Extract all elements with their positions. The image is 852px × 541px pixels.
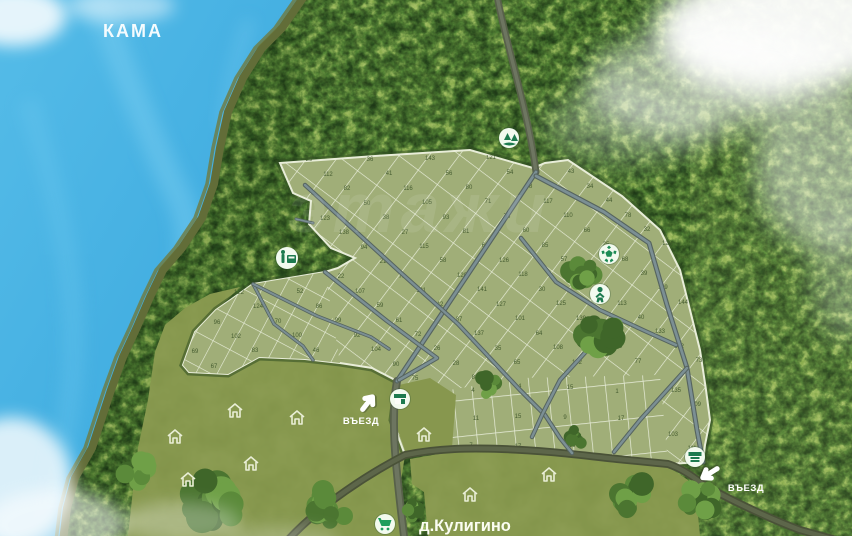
svg-text:73: 73: [696, 358, 703, 364]
svg-text:143: 143: [425, 156, 436, 162]
svg-text:128: 128: [662, 241, 673, 247]
svg-text:39: 39: [641, 271, 648, 277]
svg-text:125: 125: [556, 301, 567, 307]
svg-text:101: 101: [515, 316, 526, 322]
svg-text:122: 122: [234, 290, 245, 296]
svg-text:22: 22: [338, 274, 345, 280]
svg-text:66: 66: [584, 228, 591, 234]
svg-text:этажи: этажи: [288, 169, 552, 247]
svg-text:34: 34: [587, 184, 594, 190]
svg-text:32: 32: [644, 227, 651, 233]
svg-text:15: 15: [567, 385, 574, 391]
svg-text:29: 29: [306, 157, 313, 163]
svg-text:28: 28: [453, 361, 460, 367]
svg-text:36: 36: [367, 157, 374, 163]
svg-text:103: 103: [668, 432, 679, 438]
svg-text:126: 126: [499, 258, 510, 264]
svg-text:67: 67: [211, 364, 218, 370]
svg-text:52: 52: [297, 289, 304, 295]
svg-text:КАМА: КАМА: [103, 21, 163, 41]
svg-text:78: 78: [625, 213, 632, 219]
svg-text:35: 35: [495, 346, 502, 352]
svg-text:104: 104: [371, 347, 382, 353]
svg-text:86: 86: [316, 304, 323, 310]
svg-text:64: 64: [536, 331, 543, 337]
svg-text:ВЪЕЗД: ВЪЕЗД: [728, 483, 764, 494]
svg-text:102: 102: [231, 334, 242, 340]
svg-text:75: 75: [412, 376, 419, 382]
svg-text:110: 110: [563, 213, 573, 219]
svg-text:121: 121: [486, 155, 497, 161]
svg-text:61: 61: [396, 318, 403, 324]
svg-text:108: 108: [553, 345, 564, 351]
svg-text:ВЪЕЗД: ВЪЕЗД: [343, 416, 379, 427]
svg-text:д.Кулигино: д.Кулигино: [419, 517, 511, 535]
svg-text:65: 65: [514, 360, 521, 366]
svg-text:90: 90: [393, 362, 400, 368]
svg-text:58: 58: [440, 258, 447, 264]
svg-text:72: 72: [415, 332, 422, 338]
svg-text:26: 26: [434, 346, 441, 352]
svg-text:69: 69: [192, 349, 199, 355]
svg-text:107: 107: [355, 289, 366, 295]
svg-text:11: 11: [473, 416, 480, 422]
svg-text:137: 137: [474, 331, 485, 337]
svg-text:113: 113: [617, 301, 627, 307]
svg-text:127: 127: [496, 302, 507, 308]
svg-text:43: 43: [568, 169, 575, 175]
svg-text:15: 15: [515, 414, 522, 420]
svg-text:44: 44: [606, 198, 613, 204]
svg-text:17: 17: [618, 416, 625, 422]
svg-text:68: 68: [622, 257, 629, 263]
svg-text:59: 59: [377, 303, 384, 309]
svg-text:96: 96: [214, 320, 221, 326]
svg-text:118: 118: [518, 272, 528, 278]
svg-text:30: 30: [539, 287, 546, 293]
svg-text:77: 77: [635, 359, 642, 365]
svg-text:135: 135: [671, 388, 682, 394]
svg-text:83: 83: [252, 348, 259, 354]
svg-text:144: 144: [678, 300, 689, 306]
svg-text:141: 141: [477, 287, 488, 293]
svg-text:46: 46: [313, 348, 320, 354]
svg-text:40: 40: [638, 315, 645, 321]
